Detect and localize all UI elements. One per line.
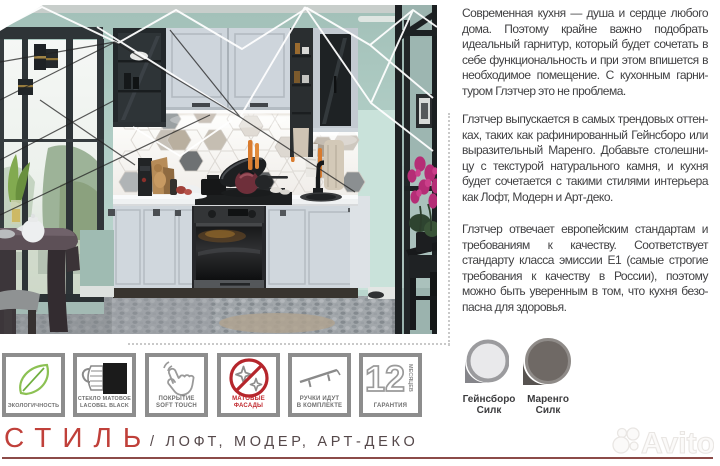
svg-text:Avito: Avito (641, 427, 714, 458)
